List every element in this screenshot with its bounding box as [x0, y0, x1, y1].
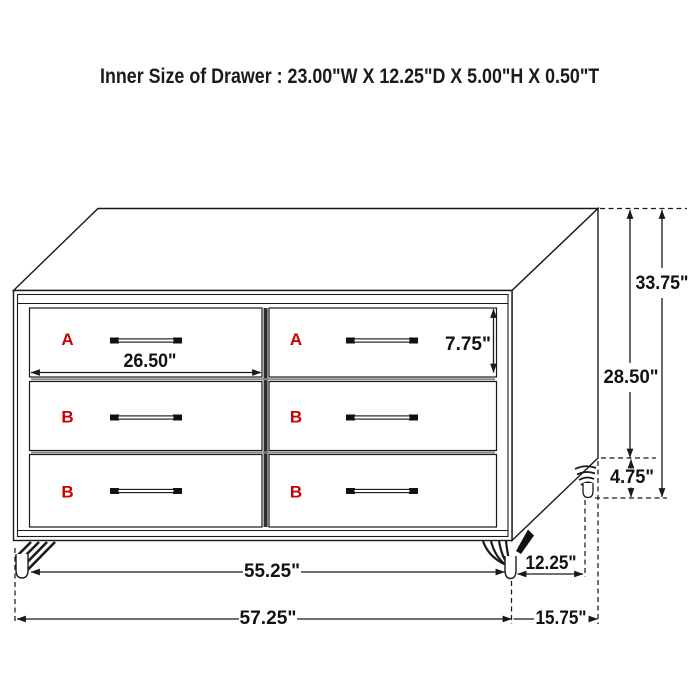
drawer-label-bottom-left: B	[61, 483, 73, 502]
drawer-label-mid-right: B	[290, 408, 302, 427]
back-right-foot	[583, 483, 593, 498]
drawer-label-bottom-right: B	[290, 483, 302, 502]
handle-top-left	[110, 338, 182, 344]
handle-mid-right	[346, 415, 418, 421]
drawer-label-top-right: A	[290, 330, 302, 349]
handle-bottom-right	[346, 488, 418, 494]
dim-label-overall-height: 33.75"	[636, 273, 689, 294]
dim-label-overall-width: 57.25"	[240, 608, 297, 629]
front-right-foot	[505, 556, 516, 579]
handle-top-right	[346, 338, 418, 344]
handle-bottom-left	[110, 488, 182, 494]
dresser-top-surface	[14, 209, 599, 291]
front-left-foot	[16, 554, 28, 578]
dim-label-side-leg-span: 12.25"	[526, 553, 577, 574]
dim-label-drawer-width: 26.50"	[124, 351, 177, 372]
dim-label-front-leg-span: 55.25"	[244, 561, 300, 582]
dimension-diagram: Inner Size of Drawer : 23.00"W X 12.25"D…	[0, 0, 700, 700]
dim-label-drawer-face-height: 7.75"	[445, 334, 491, 355]
dim-label-body-height: 28.50"	[604, 367, 659, 388]
drawer-label-mid-left: B	[61, 408, 73, 427]
dresser-diagram-canvas: A A B B B B	[0, 0, 700, 700]
handle-mid-left	[110, 415, 182, 421]
dim-label-overall-depth: 15.75"	[536, 608, 587, 629]
dim-label-leg-height: 4.75"	[610, 467, 654, 488]
drawer-label-top-left: A	[61, 330, 73, 349]
